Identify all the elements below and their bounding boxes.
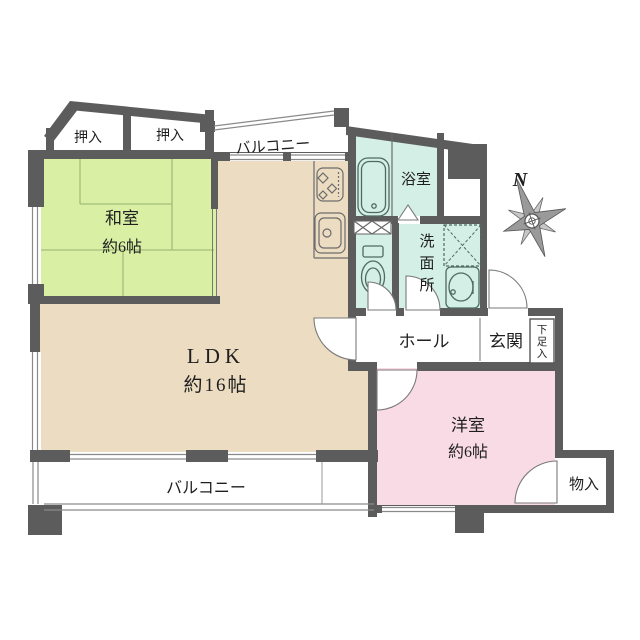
washroom-label: 洗 面 所 [419, 233, 434, 294]
window-ldk-south-2 [228, 452, 316, 461]
svg-text:入: 入 [537, 348, 548, 360]
ldk-label: LDK [187, 344, 245, 368]
bath-threshold-hatch [354, 221, 391, 234]
svg-text:足: 足 [537, 336, 548, 348]
window-ldk-north-2 [291, 153, 345, 161]
closet2-label: 押入 [156, 128, 184, 144]
hall-label: ホール [399, 332, 450, 351]
window-ldk-south-1 [70, 452, 186, 461]
youshitsu-label: 洋室 [451, 416, 485, 435]
window-youshitsu-south [382, 506, 455, 513]
window-washitsu-west [30, 207, 41, 284]
washitsu-size: 約6帖 [102, 238, 142, 256]
ldk-size: 約16帖 [183, 374, 248, 396]
compass-north-label: N [512, 169, 529, 191]
floor-plan-canvas: N 押入 押入 バルコニー 浴室 洗 面 所 和室 約6帖 LDK 約16帖 ホ… [0, 0, 640, 640]
genkan-label: 玄関 [489, 332, 523, 351]
svg-text:所: 所 [419, 277, 434, 294]
shoebox-label: 下 足 入 [537, 325, 548, 360]
svg-text:面: 面 [419, 256, 434, 272]
youshitsu-size: 約6帖 [448, 443, 488, 461]
alcove [444, 179, 480, 216]
floor-plan: N 押入 押入 バルコニー 浴室 洗 面 所 和室 約6帖 LDK 約16帖 ホ… [0, 0, 640, 640]
washitsu-label: 和室 [105, 209, 139, 228]
storage-label: 物入 [569, 476, 599, 493]
window-ldk-west [30, 352, 41, 450]
svg-text:洗: 洗 [419, 233, 434, 250]
svg-text:下: 下 [537, 325, 548, 336]
balcony-bottom-label: バルコニー [166, 480, 246, 497]
closet1-label: 押入 [74, 130, 102, 146]
bathroom-label: 浴室 [401, 171, 431, 188]
